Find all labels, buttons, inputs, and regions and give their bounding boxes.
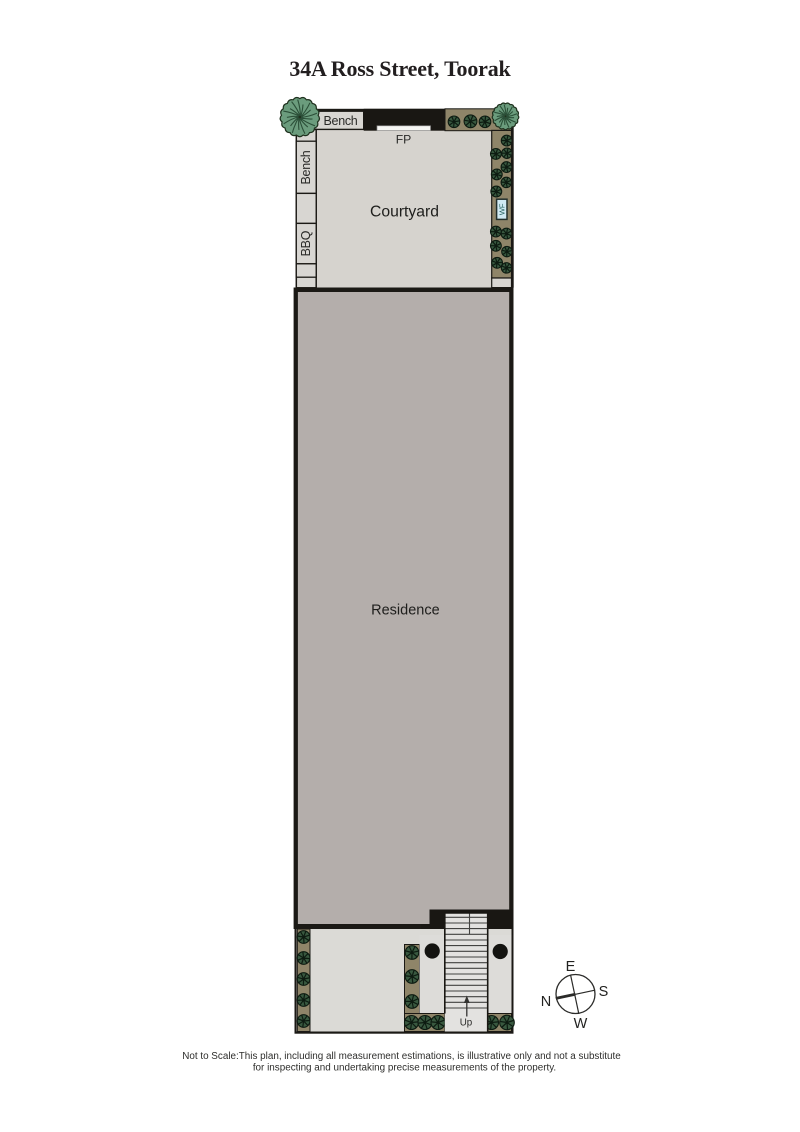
svg-text:BBQ: BBQ — [299, 230, 313, 256]
svg-text:34A Ross Street, Toorak: 34A Ross Street, Toorak — [289, 56, 511, 81]
svg-text:Bench: Bench — [299, 150, 313, 184]
svg-text:Up: Up — [460, 1018, 473, 1029]
svg-text:N: N — [541, 994, 551, 1010]
svg-text:E: E — [566, 959, 576, 975]
svg-text:for inspecting and undertaking: for inspecting and undertaking precise m… — [253, 1063, 556, 1074]
svg-text:Not to Scale:This plan, includ: Not to Scale:This plan, including all me… — [182, 1051, 621, 1062]
svg-text:Bench: Bench — [324, 114, 358, 128]
svg-text:W: W — [574, 1016, 588, 1032]
svg-text:Residence: Residence — [371, 603, 440, 619]
svg-text:FP: FP — [396, 133, 412, 147]
svg-text:Courtyard: Courtyard — [370, 203, 439, 220]
svg-text:S: S — [599, 984, 609, 1000]
svg-text:WF: WF — [497, 203, 506, 215]
